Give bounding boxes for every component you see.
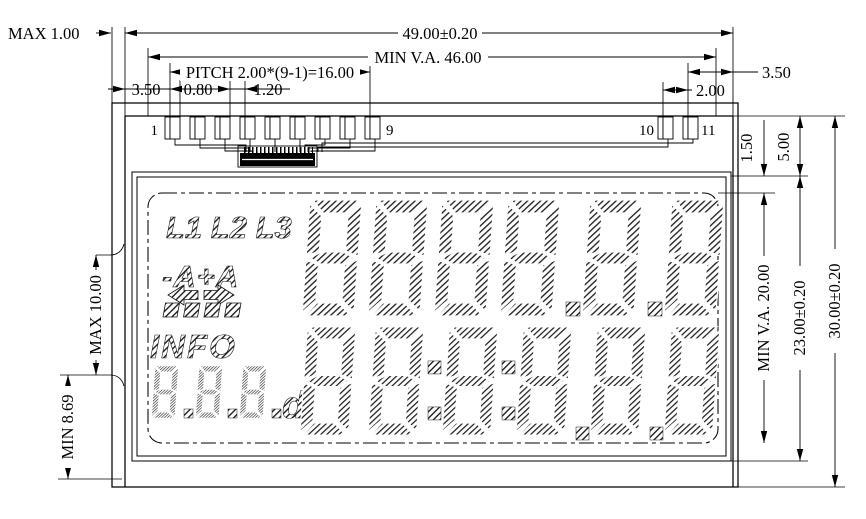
lcd-dimensional-drawing: L1 L2 L3 -A+A INFO d	[0, 0, 866, 519]
arrowhead-icon	[148, 54, 160, 60]
pin-pad	[658, 117, 663, 139]
pin-array	[165, 117, 698, 139]
dim-min-va-height: MIN V.A. 20.00	[754, 264, 773, 371]
arrowhead-icon	[676, 87, 688, 93]
decimal-point	[272, 409, 281, 418]
colon-dot	[428, 361, 441, 374]
seven-segment-digit	[300, 327, 356, 435]
dim-max-thickness: MAX 1.00	[8, 24, 80, 43]
arrowhead-icon	[721, 30, 733, 36]
arrowhead-icon	[688, 69, 700, 75]
arrowhead-icon	[761, 193, 767, 205]
colon-dot	[502, 407, 515, 420]
arrowhead-icon	[99, 30, 111, 36]
decimal-point	[576, 427, 589, 440]
pin-pad	[683, 117, 688, 139]
decimal-point	[566, 302, 580, 316]
arrowhead-icon	[125, 30, 137, 36]
arrowhead-icon	[797, 164, 803, 176]
dim-height: 30.00±0.20	[825, 263, 844, 338]
arrowhead-icon	[832, 116, 838, 128]
pin-pad	[345, 117, 355, 139]
phase-indicator-text: L1 L2 L3	[166, 210, 292, 245]
seven-segment-digit	[434, 200, 494, 316]
decimal-point	[648, 302, 662, 316]
arrowhead-icon	[832, 475, 838, 487]
dim-pad-pitch-right: 2.00	[696, 81, 725, 100]
dim-digit-height-min: MIN 8.69	[58, 394, 77, 459]
decimal-point	[650, 427, 663, 440]
seven-segment-digit	[196, 366, 223, 418]
seven-segment-digit	[240, 366, 267, 418]
pin-pad	[245, 117, 255, 139]
dim-pad-offset-left: 3.50	[132, 80, 161, 99]
arrowhead-icon	[761, 431, 767, 443]
lcd-content: L1 L2 L3 -A+A INFO d	[150, 200, 724, 440]
pin-pad	[220, 117, 230, 139]
arrowhead-icon	[663, 87, 675, 93]
decimal-point	[228, 409, 237, 418]
seven-segment-digit	[152, 366, 179, 418]
pin-pad	[265, 117, 270, 139]
bottom-digit-row	[300, 327, 720, 440]
bar-segment-icon	[225, 303, 242, 317]
pin-pad	[165, 117, 170, 139]
dim-pad-offset-right: 3.50	[762, 63, 791, 82]
arrowhead-icon	[65, 375, 71, 387]
decimal-point	[184, 409, 193, 418]
pin-label-1: 1	[151, 123, 159, 139]
arrowhead-icon	[797, 176, 803, 188]
dim-pad-width: 0.80	[184, 80, 213, 99]
colon-dot	[502, 361, 515, 374]
dim-cell-height: 23.00±0.20	[790, 280, 809, 355]
pin-pad	[215, 117, 220, 139]
pin-pad	[370, 117, 380, 139]
arrowhead-icon	[218, 86, 230, 92]
small-digit-row	[152, 366, 281, 418]
pin-pad	[340, 117, 345, 139]
top-digit-row	[302, 200, 724, 316]
arrowhead-icon	[797, 449, 803, 461]
pin-pad	[295, 117, 305, 139]
dim-min-va-width: MIN V.A. 46.00	[374, 48, 481, 67]
pin-pad	[320, 117, 330, 139]
arrowhead-icon	[721, 69, 733, 75]
seven-segment-digit	[500, 200, 560, 316]
dim-ledge-va-gap: 1.50	[737, 134, 756, 163]
seven-segment-digit	[664, 327, 720, 435]
pin-label-11: 11	[701, 123, 715, 139]
arrowhead-icon	[65, 467, 71, 479]
pin-pad	[315, 117, 320, 139]
pin-pad	[240, 117, 245, 139]
arrowhead-icon	[170, 86, 182, 92]
pin-pad	[365, 117, 370, 139]
amp-indicator-text: -A+A	[162, 259, 239, 294]
seven-segment-digit	[368, 327, 424, 435]
pin-pad	[688, 117, 698, 139]
arrowhead-icon	[704, 54, 716, 60]
arrowhead-icon	[113, 86, 125, 92]
pin-pad	[663, 117, 673, 139]
info-text: INFO	[150, 328, 237, 365]
pin-pad	[190, 117, 195, 139]
dim-width: 49.00±0.20	[402, 24, 477, 43]
bar-segment-icons	[163, 303, 241, 317]
pin-pad	[290, 117, 295, 139]
seven-segment-digit	[582, 200, 642, 316]
seven-segment-digit	[368, 200, 428, 316]
arrowhead-icon	[93, 255, 99, 267]
pin-label-10: 10	[639, 123, 654, 139]
bar-segment-icon	[204, 303, 221, 317]
seven-segment-digit	[516, 327, 572, 435]
pin-pad	[270, 117, 280, 139]
seven-segment-digit	[442, 327, 498, 435]
colon-dot	[428, 407, 441, 420]
pin-label-9: 9	[386, 123, 394, 139]
arrowhead-icon	[93, 363, 99, 375]
bar-segment-icon	[184, 303, 201, 317]
drawing-svg: L1 L2 L3 -A+A INFO d	[0, 0, 866, 519]
dim-ledge-height: 5.00	[774, 133, 793, 162]
arrowhead-icon	[797, 116, 803, 128]
arrowhead-icon	[761, 164, 767, 176]
pin-pad	[170, 117, 180, 139]
dim-digit-height-max: MAX 10.00	[86, 275, 105, 355]
dim-pad-gap: 1.20	[254, 80, 283, 99]
seven-segment-digit	[590, 327, 646, 435]
pin-pad	[195, 117, 205, 139]
seven-segment-digit	[302, 200, 362, 316]
bar-segment-icon	[163, 303, 180, 317]
leader-arc-top	[96, 244, 124, 255]
seven-segment-digit	[664, 200, 724, 316]
